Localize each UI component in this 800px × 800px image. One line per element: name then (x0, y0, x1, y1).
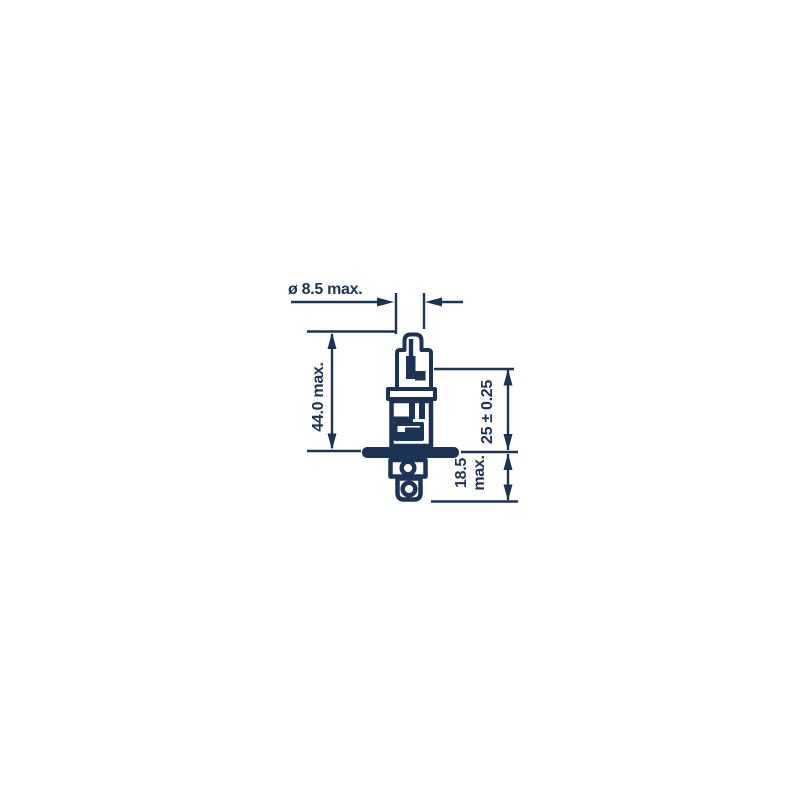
dimension-label-base-length-suffix: max. (471, 445, 489, 501)
arrowhead-left-icon (425, 298, 442, 307)
arrowhead-down-icon (504, 485, 513, 502)
arrowhead-up-icon (504, 454, 513, 471)
arrowhead-up-icon (328, 333, 337, 350)
base-collar (388, 389, 435, 399)
base-flange (362, 447, 459, 458)
diameter-dimension (291, 293, 463, 334)
dimension-label-overall-length: 44.0 max. (310, 361, 328, 433)
bulb-technical-diagram: ø 8.5 max. 44.0 max. 25 ± 0.25 18.5 max. (0, 0, 800, 800)
contact-hole-upper (402, 462, 415, 475)
dimension-label-light-center-length: 25 ± 0.25 (479, 375, 497, 449)
arrowhead-down-icon (504, 434, 513, 451)
light-center-length-dimension (434, 369, 514, 451)
dimension-label-base-length: 18.5 max. (453, 445, 489, 501)
contact-hole-lower (403, 483, 416, 496)
h1-bulb (362, 335, 459, 500)
arrowhead-down-icon (328, 434, 337, 451)
diagram-canvas (0, 0, 800, 800)
arrowhead-up-icon (504, 369, 513, 386)
dimension-label-diameter: ø 8.5 max. (288, 281, 378, 299)
dimension-label-base-length-value: 18.5 (453, 445, 471, 501)
arrowhead-right-icon (377, 298, 394, 307)
